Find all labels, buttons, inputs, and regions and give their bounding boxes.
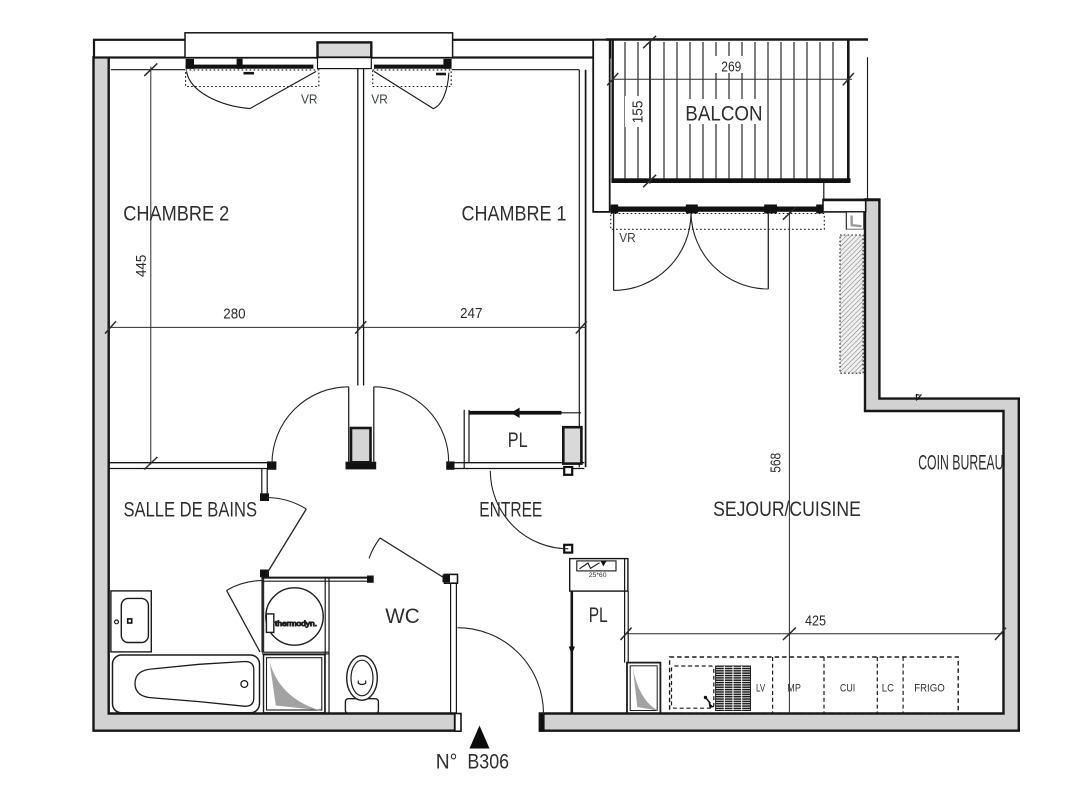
svg-text:B306: B306 bbox=[467, 751, 509, 774]
svg-text:PL: PL bbox=[589, 604, 608, 627]
svg-text:LV: LV bbox=[756, 683, 766, 695]
svg-text:SEJOUR/CUISINE: SEJOUR/CUISINE bbox=[713, 498, 861, 521]
svg-text:COIN BUREAU: COIN BUREAU bbox=[918, 452, 1003, 475]
svg-text:CHAMBRE 2: CHAMBRE 2 bbox=[123, 202, 229, 225]
svg-text:BALCON: BALCON bbox=[685, 103, 762, 126]
svg-text:ENTREE: ENTREE bbox=[479, 499, 542, 522]
svg-text:VR: VR bbox=[301, 91, 318, 106]
svg-text:280: 280 bbox=[223, 306, 245, 322]
svg-text:568: 568 bbox=[768, 453, 784, 473]
svg-text:SALLE DE BAINS: SALLE DE BAINS bbox=[124, 499, 258, 522]
svg-text:25*60: 25*60 bbox=[589, 572, 607, 579]
svg-text:155: 155 bbox=[631, 101, 647, 124]
svg-text:445: 445 bbox=[134, 255, 150, 277]
svg-text:CHAMBRE 1: CHAMBRE 1 bbox=[462, 203, 567, 226]
svg-text:LC: LC bbox=[882, 683, 894, 695]
svg-text:VR: VR bbox=[371, 91, 388, 106]
svg-text:247: 247 bbox=[460, 306, 483, 322]
svg-text:425: 425 bbox=[805, 614, 826, 630]
svg-text:PL: PL bbox=[508, 429, 528, 452]
svg-text:MP: MP bbox=[787, 683, 801, 695]
svg-text:FRIGO: FRIGO bbox=[914, 683, 945, 695]
svg-text:N°: N° bbox=[436, 751, 458, 774]
svg-text:269: 269 bbox=[721, 59, 741, 75]
svg-text:VR: VR bbox=[619, 230, 636, 245]
svg-text:thermodyn.: thermodyn. bbox=[275, 621, 317, 628]
svg-text:CUI: CUI bbox=[840, 683, 855, 695]
svg-text:WC: WC bbox=[385, 605, 419, 628]
